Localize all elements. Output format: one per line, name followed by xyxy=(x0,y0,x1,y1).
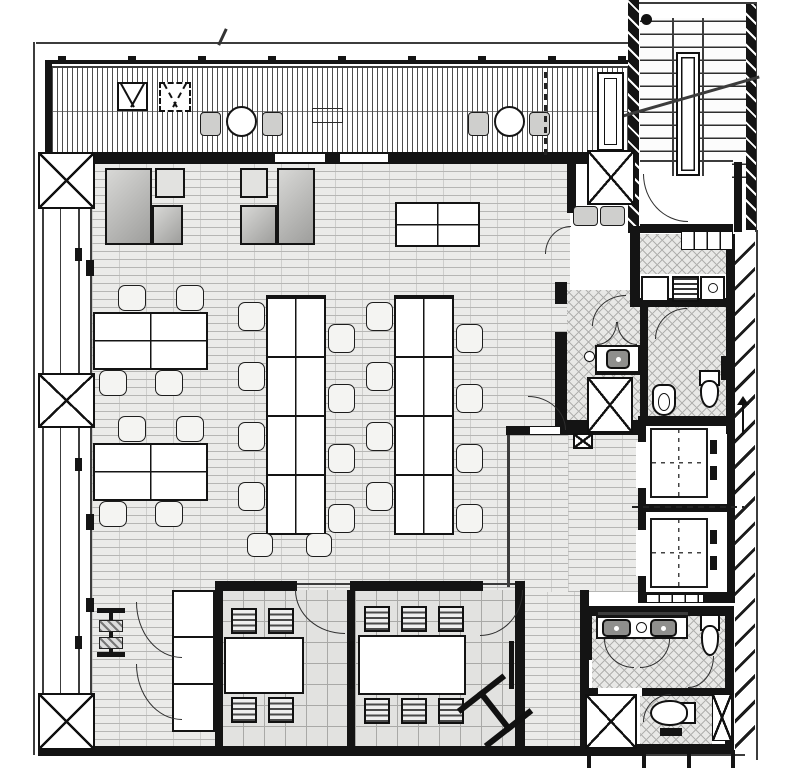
dining-chair-1d xyxy=(155,370,183,396)
kitchen-west-wall xyxy=(630,226,640,307)
vanity-mirror-1 xyxy=(595,371,640,375)
stair-handrail xyxy=(676,52,700,176)
stair-east-wall xyxy=(746,4,756,230)
dining-chair-2a xyxy=(118,416,146,442)
meeting-north-wall-2 xyxy=(350,581,483,591)
work-chair-2L3 xyxy=(366,422,393,451)
shaft-centerline xyxy=(632,506,744,508)
entry-bench-1 xyxy=(573,206,598,226)
dining-table-cluster-2 xyxy=(93,443,208,501)
guide-rail-2 xyxy=(710,466,717,480)
site-boundary-right xyxy=(756,230,758,760)
work-table-2 xyxy=(394,295,454,535)
stall-step xyxy=(660,728,682,736)
dining-chair-1a xyxy=(118,285,146,311)
railing-post-9 xyxy=(618,56,626,64)
meeting-chair-2d xyxy=(364,698,390,724)
work-chair-1L2 xyxy=(238,362,265,391)
work-chair-1R2 xyxy=(328,384,355,413)
work-chair-2L2 xyxy=(366,362,393,391)
corridor-floor xyxy=(520,592,580,748)
outdoor-chair-2 xyxy=(262,112,283,136)
planter-hatch-2 xyxy=(159,82,191,112)
meeting-chair-2e xyxy=(401,698,427,724)
terrace-edge-post xyxy=(45,62,52,157)
work-chair-1R4 xyxy=(328,504,355,533)
soap-dispenser-2 xyxy=(636,622,647,633)
service-door xyxy=(712,694,732,741)
kitchen-faucet xyxy=(708,283,718,293)
work-chair-1L1 xyxy=(238,302,265,331)
railing-post-5 xyxy=(338,56,346,64)
planter-hatch-1 xyxy=(117,82,148,111)
column-ne xyxy=(587,150,635,205)
outdoor-chair-1 xyxy=(200,112,221,136)
elevator-lobby-floor xyxy=(568,432,640,592)
dining-chair-2b xyxy=(176,416,204,442)
lounge-table xyxy=(395,202,480,247)
meeting-table-2 xyxy=(358,635,466,695)
wc-divider-wall xyxy=(640,307,648,419)
railing-post-8 xyxy=(548,56,556,64)
west-window-outer xyxy=(42,205,44,695)
shaft-wall-detail xyxy=(646,594,704,603)
west-window-inner xyxy=(78,205,80,695)
wc-shelf xyxy=(721,356,728,380)
meeting-north-wall-1 xyxy=(215,581,297,591)
work-chair-2L1 xyxy=(366,302,393,331)
washblock-east-wall xyxy=(726,234,735,434)
lounge-sofa-1a xyxy=(105,168,152,245)
column-w xyxy=(38,373,95,428)
lobby-west-partition xyxy=(507,435,510,587)
outdoor-chair-3 xyxy=(468,112,489,136)
shoe-lockers xyxy=(681,231,733,250)
elevator-door-opening-2 xyxy=(636,530,646,576)
fence-post-2 xyxy=(642,750,646,768)
work-table-1 xyxy=(266,295,326,535)
railing-post-6 xyxy=(408,56,416,64)
dining-chair-2d xyxy=(155,501,183,527)
work-chair-end-2 xyxy=(306,533,332,557)
window-mullion-1 xyxy=(75,248,82,261)
washroom-west-wall-a xyxy=(555,282,567,304)
meeting-west-wall xyxy=(215,581,223,756)
entry-arrow xyxy=(736,396,750,434)
floor-plan-canvas xyxy=(0,0,787,770)
work-chair-2L4 xyxy=(366,482,393,511)
column-nw xyxy=(38,152,95,209)
site-boundary-top xyxy=(36,42,632,44)
planter-tall xyxy=(597,72,624,151)
window-mullion-3 xyxy=(75,636,82,649)
lounge-sofa-2b xyxy=(240,205,277,245)
deck-bench-outline xyxy=(312,108,343,123)
meeting-chair-1d xyxy=(268,697,294,723)
meeting-chair-1a xyxy=(231,608,257,634)
lounge-sofa-2a xyxy=(277,168,315,245)
elevator-door-opening-1 xyxy=(636,442,646,488)
work-chair-2R1 xyxy=(456,324,483,353)
south-wall xyxy=(38,746,642,756)
guide-rail-4 xyxy=(710,556,717,570)
meeting-chair-1c xyxy=(231,697,257,723)
urinal xyxy=(652,384,676,416)
elevator-car-1 xyxy=(650,428,708,498)
wall-stub-3 xyxy=(86,598,94,612)
work-chair-2R3 xyxy=(456,444,483,473)
wash-basin-3 xyxy=(650,619,677,637)
toilet-2 xyxy=(697,614,723,656)
column-sw xyxy=(38,693,95,750)
shelf-hatch-1 xyxy=(99,620,123,632)
soap-dispenser-1 xyxy=(584,351,595,362)
wash-basin-2 xyxy=(602,619,631,637)
railing-post-4 xyxy=(268,56,276,64)
work-chair-2R2 xyxy=(456,384,483,413)
terrace-railing-inner xyxy=(45,66,630,68)
stair-column-dot xyxy=(641,14,652,25)
stair-outline-top xyxy=(628,2,757,4)
meeting-chair-1b xyxy=(268,608,294,634)
work-chair-1L3 xyxy=(238,422,265,451)
work-chair-end-1 xyxy=(247,533,273,557)
lounge-ottoman-2 xyxy=(240,168,268,198)
fence-post-4 xyxy=(731,750,735,768)
meeting-chair-2c xyxy=(438,606,464,632)
work-chair-1L4 xyxy=(238,482,265,511)
site-boundary-left xyxy=(33,42,35,755)
guide-rail-1 xyxy=(710,440,717,454)
guide-rail-3 xyxy=(710,530,717,544)
mirror-strip xyxy=(598,612,688,615)
toilet-1 xyxy=(696,370,723,408)
outdoor-round-table-2 xyxy=(494,106,525,137)
wall-display-1 xyxy=(349,641,354,689)
entry-bench-2 xyxy=(600,206,625,226)
shelf-hatch-2 xyxy=(99,637,123,649)
wall-stub-2 xyxy=(86,514,94,530)
kitchen-grill xyxy=(672,276,699,302)
stair-stringer-1 xyxy=(672,18,674,176)
railing-post-2 xyxy=(128,56,136,64)
dining-chair-1c xyxy=(99,370,127,396)
shaft-north-wall xyxy=(638,416,735,426)
dining-chair-2c xyxy=(99,501,127,527)
elevator-car-2 xyxy=(650,518,708,588)
lounge-ottoman-1 xyxy=(155,168,185,198)
window-mullion-2 xyxy=(75,458,82,471)
lounge-sofa-1b xyxy=(152,205,183,245)
work-chair-1R1 xyxy=(328,324,355,353)
wall-stub-1 xyxy=(86,260,94,276)
shaft-east-wall xyxy=(727,416,735,602)
sliding-door-track xyxy=(544,70,547,155)
north-wall-opening-1 xyxy=(275,154,325,162)
meeting-table-1 xyxy=(224,637,304,694)
wash-basin-1 xyxy=(606,349,630,369)
vestibule-east-wall xyxy=(734,162,742,232)
east-ledge-hatch xyxy=(735,240,755,750)
work-chair-2R4 xyxy=(456,504,483,533)
kitchen-unit xyxy=(641,276,669,302)
work-chair-1R3 xyxy=(328,444,355,473)
dining-chair-1b xyxy=(176,285,204,311)
meeting-chair-2b xyxy=(401,606,427,632)
dining-table-cluster-1 xyxy=(93,312,208,370)
railing-post-7 xyxy=(478,56,486,64)
railing-post-1 xyxy=(58,56,66,64)
stair-stringer-2 xyxy=(702,18,704,176)
meeting-chair-2a xyxy=(364,606,390,632)
outdoor-round-table-1 xyxy=(226,106,257,137)
column-se xyxy=(585,694,637,749)
column-e xyxy=(587,377,633,433)
fence-post-3 xyxy=(687,750,691,768)
railing-post-3 xyxy=(198,56,206,64)
west-window-mid xyxy=(60,206,61,695)
west-glazing-line xyxy=(90,164,92,748)
floor-drain-box xyxy=(573,433,593,449)
north-wall-opening-2 xyxy=(340,154,388,162)
door-header-1 xyxy=(297,583,350,585)
